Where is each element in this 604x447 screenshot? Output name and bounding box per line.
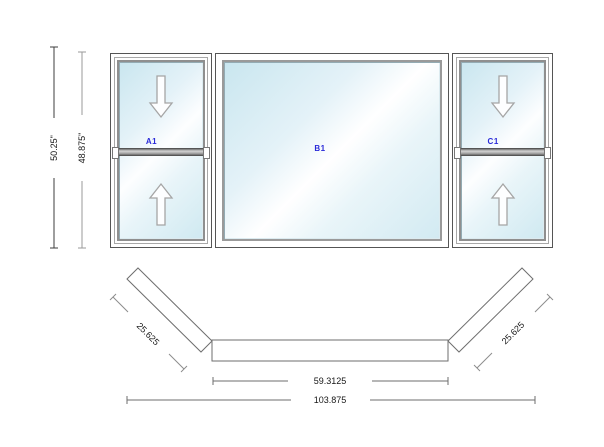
tilt-latch-right	[203, 147, 210, 159]
plan-center-section	[212, 340, 448, 361]
dimension-height-frame-text: 48.875"	[77, 133, 87, 164]
panel-b1-picture[interactable]: B1	[215, 53, 449, 248]
panel-a1-label: A1	[146, 137, 157, 146]
dimension-total-width	[127, 396, 535, 404]
panel-b1-label: B1	[314, 144, 325, 153]
window-drawing-canvas: A1 B1	[0, 0, 604, 447]
dimension-flanker-left-text: 25.625	[135, 321, 162, 348]
dimension-height-overall	[50, 47, 58, 248]
tilt-latch-left	[454, 147, 461, 159]
plan-view	[127, 268, 533, 361]
panel-a1-double-hung[interactable]: A1	[110, 53, 212, 248]
panel-a1-meeting-rail	[112, 148, 210, 156]
panel-b1-glass: B1	[222, 60, 442, 241]
dimension-total-width-text: 103.875	[314, 395, 347, 405]
tilt-latch-left	[112, 147, 119, 159]
plan-left-flanker	[127, 268, 212, 352]
dimension-flanker-right-text: 25.625	[500, 320, 527, 347]
panel-a1-glass: A1	[117, 60, 205, 241]
panel-c1-meeting-rail	[454, 148, 551, 156]
panel-c1-double-hung[interactable]: C1	[452, 53, 553, 248]
dimension-height-overall-text: 50.25"	[49, 135, 59, 161]
dimension-center-width-text: 59.3125	[314, 376, 347, 386]
panel-c1-glass: C1	[459, 60, 546, 241]
dimension-center-width	[213, 377, 448, 385]
slide-down-arrow-icon	[148, 75, 174, 119]
dimension-flanker-right	[474, 294, 553, 371]
plan-right-flanker	[448, 268, 533, 352]
tilt-latch-right	[544, 147, 551, 159]
dimension-height-frame	[78, 52, 86, 248]
slide-up-arrow-icon	[490, 182, 516, 226]
dimension-flanker-left	[110, 294, 187, 372]
slide-down-arrow-icon	[490, 75, 516, 119]
panel-c1-label: C1	[488, 137, 499, 146]
slide-up-arrow-icon	[148, 182, 174, 226]
